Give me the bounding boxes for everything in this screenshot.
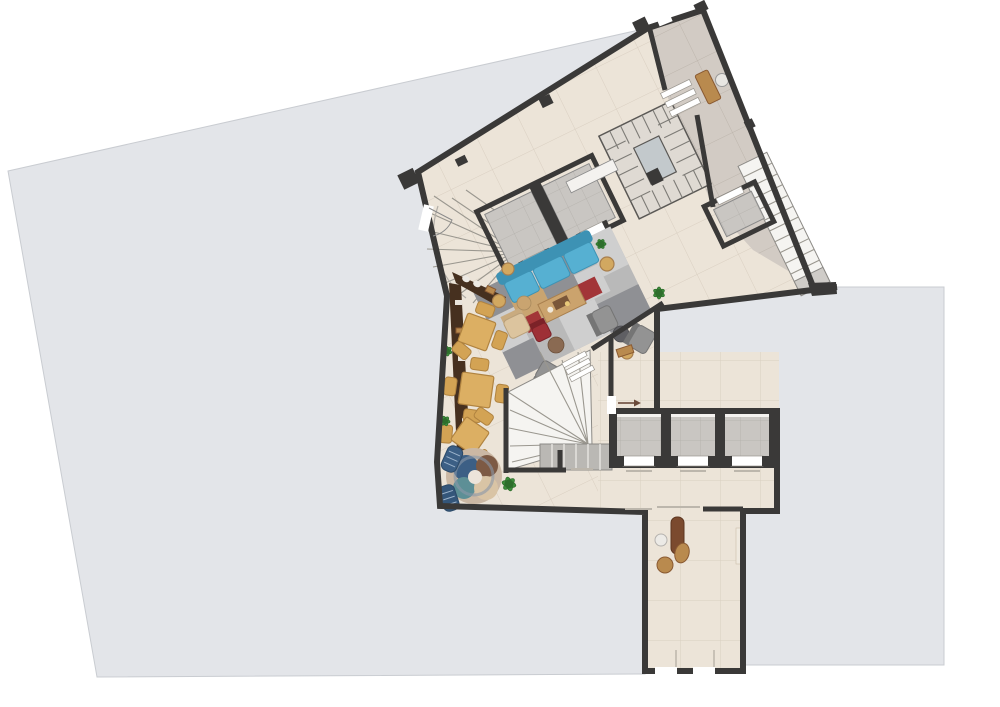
side-table (600, 257, 614, 271)
floor-plan-canvas (0, 0, 1000, 707)
pouf (517, 296, 531, 310)
elevator-door (673, 456, 713, 466)
floor-plan-svg (0, 0, 1000, 707)
bar-stool (502, 263, 514, 275)
elevator-door (727, 456, 767, 466)
lobby-elevators (609, 408, 779, 471)
bar-stool (493, 295, 506, 308)
elevator-door (619, 456, 659, 466)
pouf (548, 337, 564, 353)
plant (596, 239, 606, 250)
lower-corridor-floor (645, 505, 743, 671)
